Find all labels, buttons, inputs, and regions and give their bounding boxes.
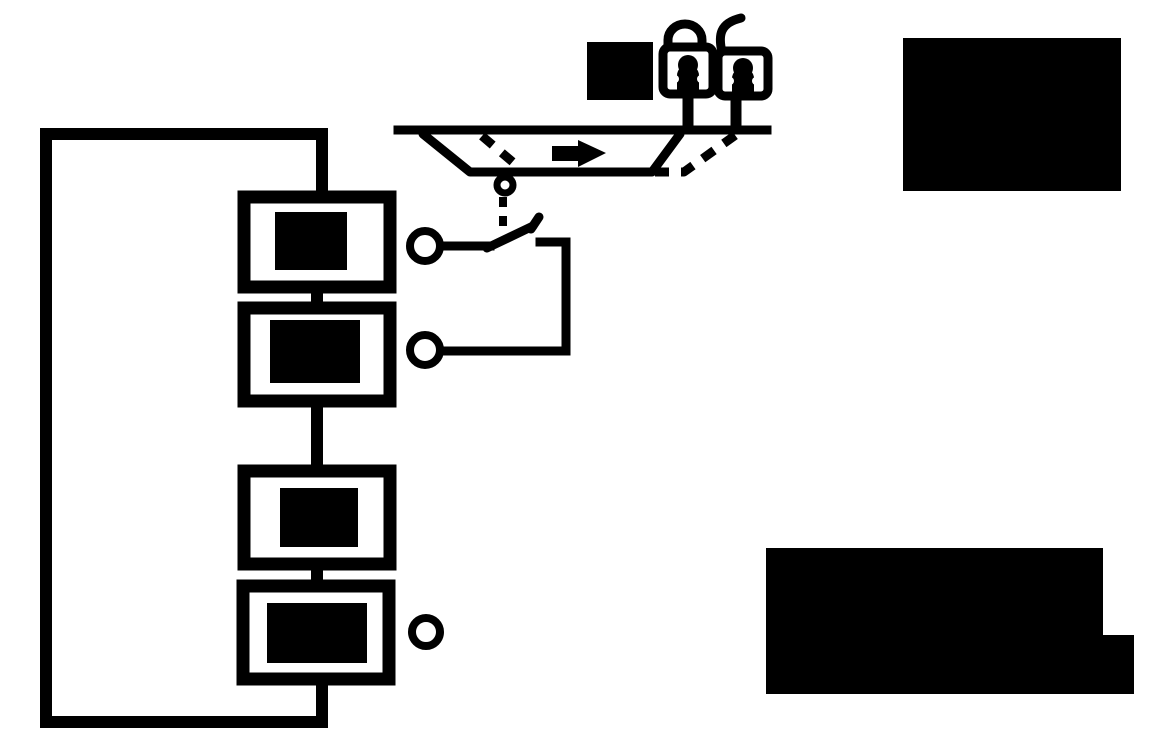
carriage-outline <box>423 134 680 172</box>
switch-fixed-contact-wire <box>445 242 566 351</box>
page <box>0 0 1170 755</box>
switch-blade <box>487 226 533 248</box>
device-box-3-redacted-label <box>280 488 358 547</box>
right-notch-r <box>752 77 760 85</box>
device-box-1-redacted-label <box>275 212 347 270</box>
corded-indicator-icon <box>718 18 768 96</box>
switch-blade-tip <box>531 217 539 229</box>
device-box-2-redacted-label <box>270 320 360 383</box>
caption-redacted-block-line2 <box>766 635 1134 694</box>
right-indicator-bulb-base <box>732 71 754 93</box>
right-notch-l <box>726 77 734 85</box>
caption-redacted-block-line1 <box>766 548 1103 635</box>
device-box-1 <box>244 197 390 287</box>
arrow-right-icon <box>552 140 606 167</box>
device-box-4 <box>243 586 389 679</box>
actuator-pivot <box>497 177 513 193</box>
rail-and-carriage <box>398 130 767 172</box>
terminal-top <box>410 231 440 261</box>
carriage-alt-position-left-dashed <box>482 136 521 169</box>
redacted-blocks <box>587 38 1134 694</box>
left-notch-l <box>671 75 679 83</box>
left-notch-r <box>697 75 705 83</box>
locked-indicator-icon <box>663 24 713 94</box>
left-indicator-bulb-base <box>677 68 699 90</box>
device-box-3 <box>244 471 390 564</box>
legend-redacted-block <box>903 38 1121 191</box>
terminal-lone <box>412 618 440 646</box>
device-box-4-redacted-label <box>267 603 367 663</box>
indicator-devices <box>663 18 768 131</box>
contact-switch <box>410 177 566 365</box>
device-box-2 <box>244 308 390 401</box>
schematic-diagram <box>0 0 1170 755</box>
carriage-area-redacted-label <box>587 42 653 100</box>
terminal-bottom <box>410 335 440 365</box>
